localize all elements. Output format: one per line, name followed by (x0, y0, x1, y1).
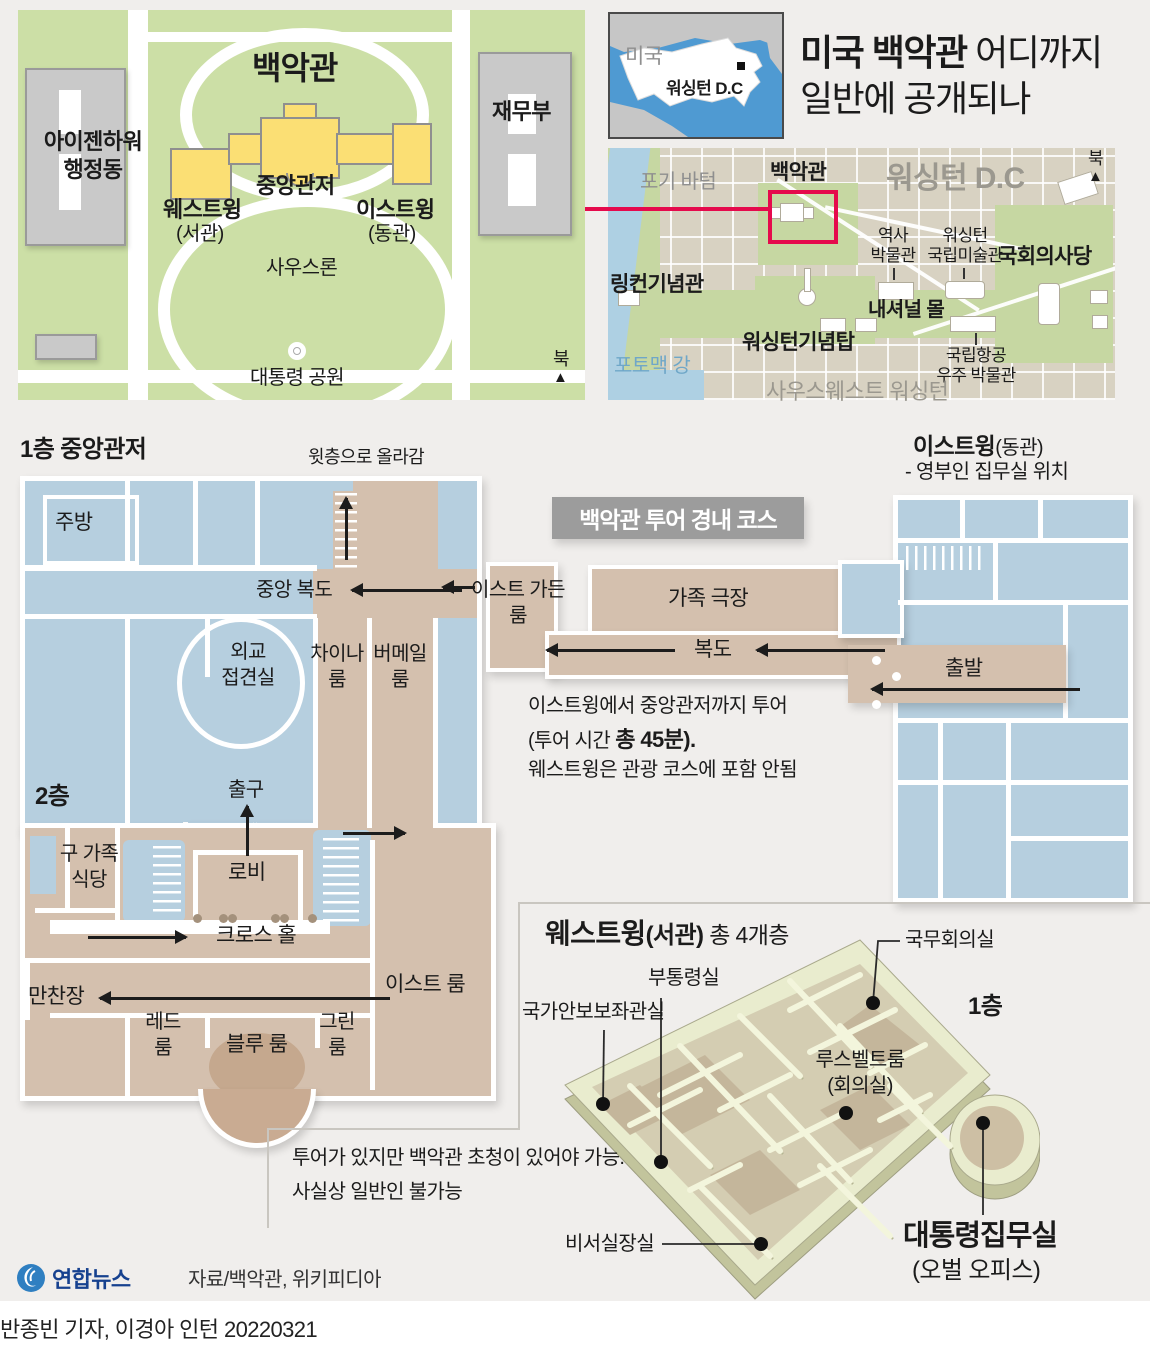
state-dining-label: 만찬장 (28, 984, 84, 1011)
south-lawn-label: 사우스론 (266, 256, 337, 282)
us-country-label: 미국 (625, 44, 662, 71)
vermeil-room-label: 버메일 룸 (368, 642, 432, 693)
headline-rest: 어디까지 (967, 32, 1102, 73)
ww-title-bold: 웨스트윙 (545, 918, 646, 949)
dc-white-house-label: 백악관 (770, 160, 826, 187)
section-divider (267, 1128, 269, 1228)
small-building (35, 334, 97, 360)
china-room-label: 차이나 룸 (306, 642, 368, 693)
eisenhower-label: 아이젠하워 행정동 (38, 128, 148, 184)
hallway-arrow-1 (547, 649, 675, 652)
monument-obelisk-icon (804, 268, 811, 292)
old-family-dining-label: 구 가족 식당 (50, 842, 128, 893)
national-mall-label: 내셔널 몰 (868, 298, 944, 324)
headline-bold: 미국 백악관 (800, 32, 967, 73)
colonnade-dot (872, 656, 881, 665)
residence-label: 중앙관저 (256, 172, 335, 200)
exit-label: 출구 (228, 778, 264, 804)
tour-note-line3: 웨스트윙은 관광 코스에 포함 안됨 (528, 758, 797, 784)
fountain-center (293, 347, 301, 355)
diplomatic-label: 외교 접견실 (210, 640, 286, 691)
oval-office-sublabel: (오벌 오피스) (912, 1256, 1040, 1287)
roosevelt-room-label: 루스벨트룸 (800, 1048, 920, 1074)
national-gallery-label: 워싱턴 국립미술관 (926, 226, 1004, 267)
red-highlight-box (768, 190, 838, 244)
east-wing-shape (392, 123, 432, 185)
yonhap-logo-icon (16, 1263, 46, 1293)
f2-east-arrow (343, 832, 405, 835)
state-dining-arrow (100, 997, 390, 1000)
foggy-bottom-label: 포기 바텀 (640, 170, 716, 196)
treasury-label: 재무부 (492, 98, 551, 126)
east-wing-subtitle: - 영부인 집무실 위치 (905, 460, 1068, 486)
tour-course-badge: 백악관 투어 경내 코스 (552, 497, 804, 539)
west-wing-label: 웨스트윙 (163, 196, 242, 224)
ww-title-note: 총 4개층 (709, 922, 789, 948)
lincoln-label: 링컨기념관 (610, 272, 704, 299)
tour-note-line2: (투어 시간 총 45분). (528, 726, 696, 755)
building-icon (950, 316, 996, 332)
departure-label: 출발 (945, 656, 982, 683)
section-divider (267, 1128, 520, 1130)
west-wing-section-title: 웨스트윙(서관) 총 4개층 (545, 916, 789, 952)
credit-label: 반종빈 기자, 이경아 인턴 20220321 (0, 1316, 317, 1344)
roosevelt-room-sublabel: (회의실) (800, 1074, 920, 1100)
overview-title: 백악관 (252, 48, 337, 89)
road (452, 10, 470, 400)
exit-arrow (246, 806, 249, 856)
blue-room-label: 블루 룸 (226, 1032, 287, 1059)
red-room-label: 레드 룸 (134, 1010, 192, 1061)
treasury-building (478, 52, 572, 236)
east-wing-title-bold: 이스트윙 (913, 433, 995, 459)
hallway-arrow-2 (757, 649, 885, 652)
us-inset-map (608, 12, 784, 139)
source-label: 자료/백악관, 위키피디아 (188, 1268, 381, 1294)
ovmap-north-icon: ▲ (553, 368, 567, 387)
building-icon (1092, 315, 1108, 329)
history-museum-label: 역사 박물관 (858, 226, 928, 267)
section-divider (518, 902, 1150, 904)
cabinet-room-label: 국무회의실 (905, 928, 994, 954)
hallway-label: 복도 (694, 637, 731, 664)
monument-label: 워싱턴기념탑 (742, 330, 854, 357)
headline-line1: 미국 백악관 어디까지 (800, 30, 1102, 76)
cross-hall-label: 크로스 홀 (216, 923, 296, 950)
ww-title-sub: (서관) (646, 922, 704, 949)
leader-line (975, 333, 977, 345)
east-garden-label: 이스트 가든 룸 (460, 578, 576, 629)
agency-label: 연합뉴스 (52, 1266, 131, 1294)
west-wing-sublabel: (서관) (176, 222, 224, 248)
f2-section-title: 2층 (35, 782, 69, 813)
capitol-label: 국회의사당 (998, 244, 1092, 271)
leader-line (893, 268, 895, 280)
tour-note-line2-bold: 총 45분). (615, 727, 695, 752)
central-hall-label: 중앙 복도 (256, 578, 332, 604)
east-room-label: 이스트 룸 (385, 972, 465, 999)
east-garden-arrow (443, 586, 475, 589)
southwest-label: 사우스웨스트 워싱턴 (766, 378, 948, 406)
dc-north-icon: ▲ (1088, 167, 1102, 186)
dc-title-label: 워싱턴 D.C (886, 160, 1025, 198)
ww-floor-label: 1층 (968, 992, 1002, 1023)
east-wing-title: 이스트윙(동관) (913, 432, 1043, 462)
section-divider (518, 902, 520, 1130)
south-portico-f2 (198, 1089, 316, 1148)
kitchen-label: 주방 (55, 510, 92, 537)
leader-line (963, 268, 965, 279)
connector-rooms-shape (838, 560, 904, 638)
presidents-park-label: 대통령 공원 (250, 366, 344, 392)
capitol-icon (1038, 283, 1060, 325)
potomac-label: 포토맥 강 (614, 354, 690, 380)
red-connector-line (585, 207, 770, 211)
east-wing-label: 이스트윙 (356, 196, 435, 224)
residence-shape (260, 117, 340, 179)
ww-note-line1: 투어가 있지만 백악관 초청이 있어야 가능. (292, 1146, 624, 1172)
building-icon (1090, 290, 1108, 304)
building-icon (945, 281, 985, 299)
stairs-up-arrow (345, 498, 348, 560)
chief-of-staff-label: 비서실장실 (565, 1232, 654, 1258)
ww-note-line2: 사실상 일반인 불가능 (292, 1180, 462, 1206)
f1-section-title: 1층 중앙관저 (20, 435, 146, 466)
road (128, 10, 148, 400)
colonnade-dot (892, 672, 901, 681)
lobby-label: 로비 (228, 860, 265, 887)
east-wing-title-sub: (동관) (995, 437, 1043, 459)
family-theater-label: 가족 극장 (668, 586, 748, 613)
west-wing-shape (170, 148, 232, 200)
vp-office-label: 부통령실 (648, 966, 719, 992)
departure-arrow (872, 688, 1080, 691)
east-wing-sublabel: (동관) (368, 222, 416, 248)
colonnade-dot (872, 700, 881, 709)
us-map-graphic (610, 14, 782, 137)
oval-office-label: 대통령집무실 (903, 1218, 1057, 1255)
up-note-label: 윗층으로 올라감 (308, 446, 424, 469)
green-room-label: 그린 룸 (308, 1010, 366, 1061)
cross-hall-arrow (88, 936, 186, 939)
us-city-label: 워싱턴 D.C (666, 78, 743, 100)
infographic-canvas: 백악관 아이젠하워 행정동 재무부 중앙관저 웨스트윙 (서관) 이스트윙 (동… (0, 0, 1150, 1351)
tour-note-line1: 이스트윙에서 중앙관저까지 투어 (528, 694, 787, 720)
headline-line2: 일반에 공개되나 (800, 76, 1030, 122)
nsa-office-label: 국가안보보좌관실 (522, 1000, 664, 1026)
tour-note-line2-pre: (투어 시간 (528, 730, 615, 752)
